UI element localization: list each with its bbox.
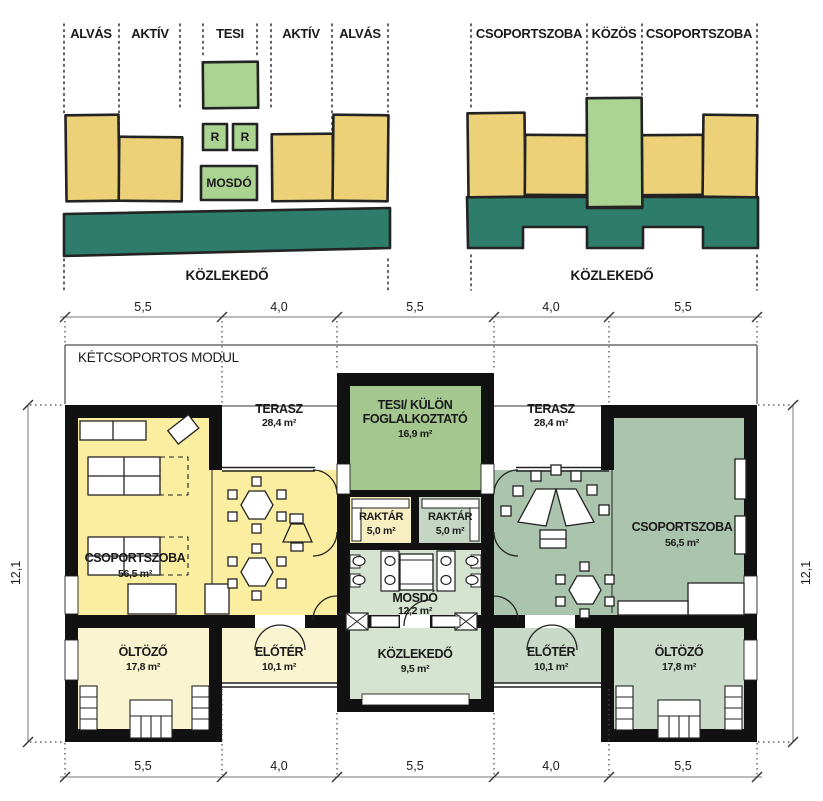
room-oltozo-left-name: ÖLTÖZŐ (119, 646, 168, 659)
zone-label-aktiv-2: AKTÍV (282, 27, 320, 41)
room-terasz-right-area: 28,4 m² (534, 418, 568, 429)
room-tesi-name-1: TESI/ KÜLÖN (378, 399, 453, 412)
mosdo-block-label: MOSDÓ (206, 177, 251, 190)
room-eloter-left-area: 10,1 m² (262, 662, 296, 673)
zone-label-alvas-1: ALVÁS (70, 27, 112, 41)
room-eloter-left-name: ELŐTÉR (255, 646, 303, 659)
zone-label-alvas-2: ALVÁS (339, 27, 381, 41)
labels-layer: ALVÁS AKTÍV TESI AKTÍV ALVÁS R R MOSDÓ K… (0, 0, 823, 801)
dim-bottom-4: 4,0 (542, 760, 559, 773)
room-raktar-left-area: 5,0 m² (367, 526, 396, 537)
room-oltozo-right-area: 17,8 m² (662, 662, 696, 673)
room-kozlekedo-name: KÖZLEKEDŐ (378, 648, 453, 661)
room-terasz-right-name: TERASZ (527, 403, 575, 416)
room-csoportszoba-left-area: 56,5 m² (118, 569, 152, 580)
corridor-label-right: KÖZLEKEDŐ (571, 269, 654, 283)
room-mosdo-area: 12,2 m² (398, 606, 432, 617)
room-oltozo-left-area: 17,8 m² (126, 662, 160, 673)
room-csoportszoba-left-name: CSOPORTSZOBA (85, 552, 186, 565)
dim-bottom-5: 5,5 (674, 760, 691, 773)
r-block-label-1: R (211, 131, 220, 144)
room-eloter-right-name: ELŐTÉR (527, 646, 575, 659)
room-csoportszoba-right-name: CSOPORTSZOBA (632, 521, 733, 534)
dim-top-4: 4,0 (542, 301, 559, 314)
zone-label-csoportszoba-1: CSOPORTSZOBA (476, 27, 582, 41)
room-raktar-left-name: RAKTÁR (359, 512, 403, 524)
zone-label-csoportszoba-2: CSOPORTSZOBA (646, 27, 752, 41)
room-eloter-right-area: 10,1 m² (534, 662, 568, 673)
dim-top-2: 4,0 (270, 301, 287, 314)
r-block-label-2: R (241, 131, 250, 144)
room-tesi-name-2: FOGLALKOZTATÓ (363, 413, 468, 426)
dim-bottom-3: 5,5 (406, 760, 423, 773)
dim-top-5: 5,5 (674, 301, 691, 314)
zone-label-kozos: KÖZÖS (592, 27, 637, 41)
dim-top-1: 5,5 (134, 301, 151, 314)
dim-top-3: 5,5 (406, 301, 423, 314)
room-terasz-left-name: TERASZ (255, 403, 303, 416)
room-raktar-right-name: RAKTÁR (428, 512, 472, 524)
room-kozlekedo-area: 9,5 m² (401, 664, 430, 675)
room-tesi-area: 16,9 m² (398, 429, 432, 440)
room-raktar-right-area: 5,0 m² (436, 526, 465, 537)
dim-bottom-1: 5,5 (134, 760, 151, 773)
zone-label-aktiv-1: AKTÍV (131, 27, 169, 41)
floor-plan-sheet: ALVÁS AKTÍV TESI AKTÍV ALVÁS R R MOSDÓ K… (0, 0, 823, 801)
dim-right: 12,1 (799, 561, 813, 585)
room-oltozo-right-name: ÖLTÖZŐ (655, 646, 704, 659)
plan-title: KÉTCSOPORTOS MODUL (78, 350, 239, 365)
room-mosdo-name: MOSDÓ (392, 592, 437, 605)
zone-label-tesi: TESI (216, 27, 244, 41)
corridor-label-left: KÖZLEKEDŐ (186, 269, 269, 283)
room-terasz-left-area: 28,4 m² (262, 418, 296, 429)
dim-left: 12,1 (9, 561, 23, 585)
room-csoportszoba-right-area: 56,5 m² (665, 538, 699, 549)
dim-bottom-2: 4,0 (270, 760, 287, 773)
